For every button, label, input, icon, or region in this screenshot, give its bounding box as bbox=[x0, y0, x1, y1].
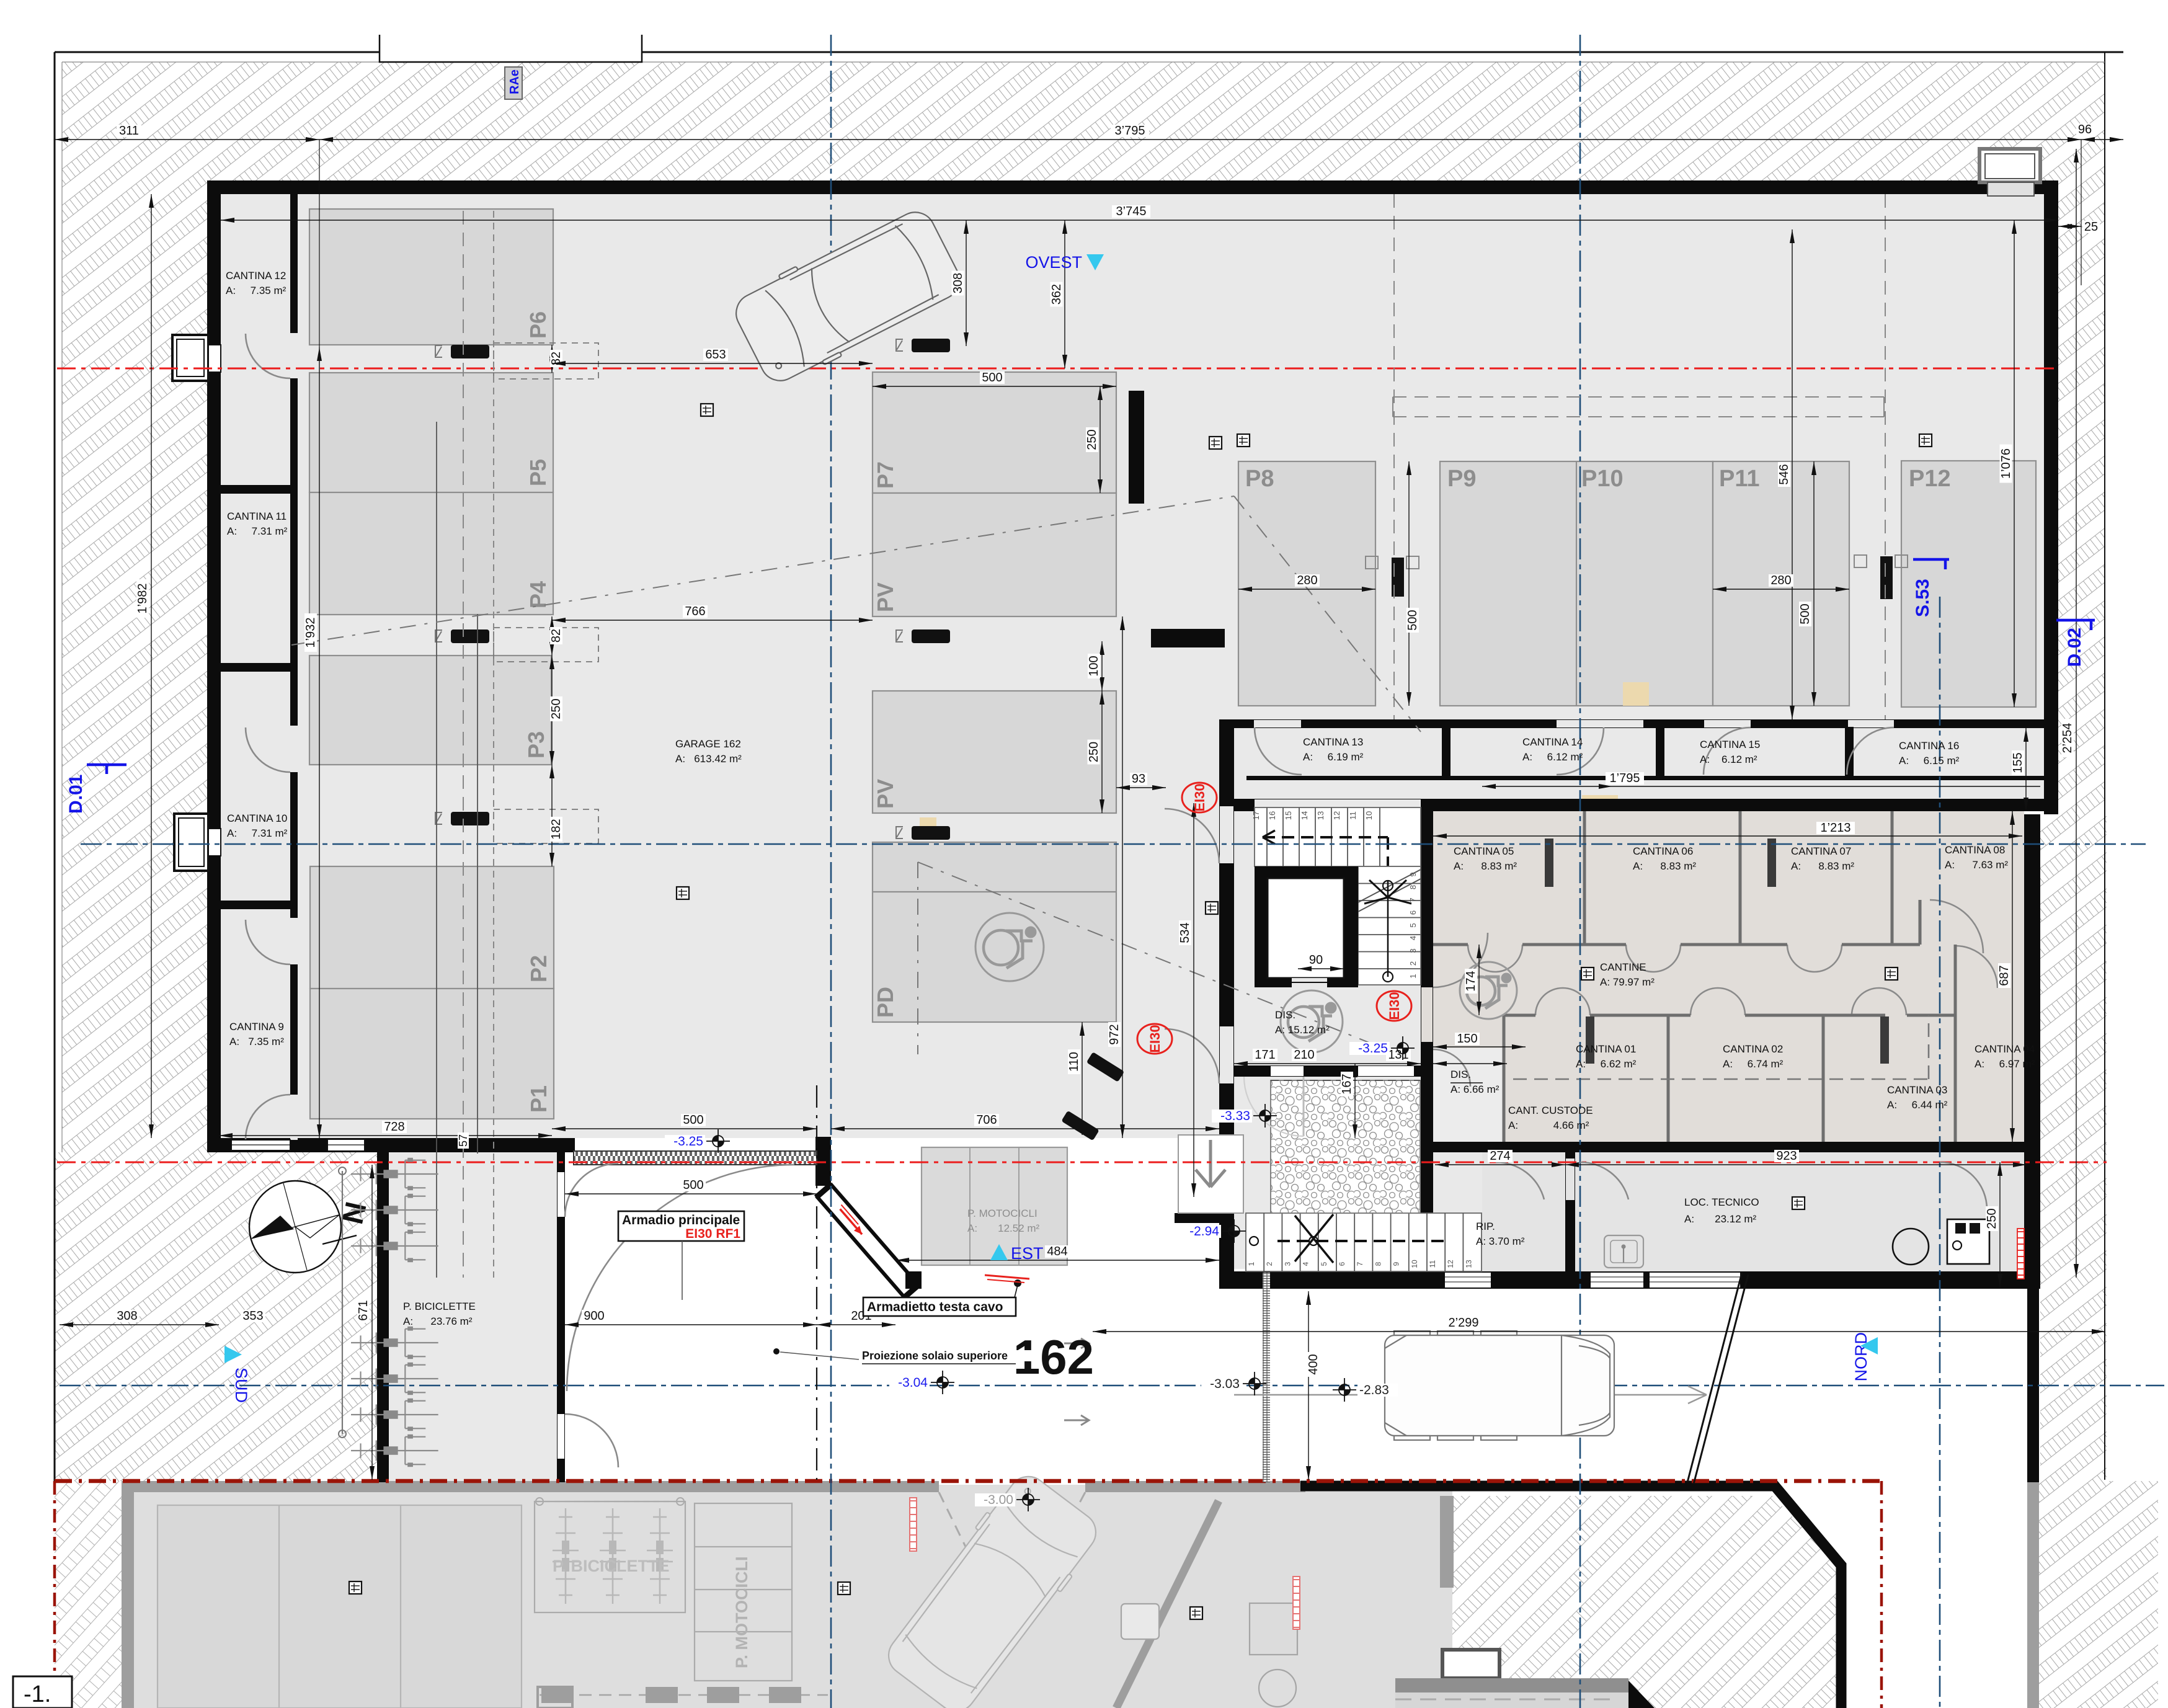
svg-text:GARAGE 162: GARAGE 162 bbox=[675, 738, 741, 750]
svg-text:CANTINA 15: CANTINA 15 bbox=[1700, 739, 1760, 750]
svg-text:A: 8.83 m²: A: 8.83 m² bbox=[1633, 860, 1696, 872]
svg-text:766: 766 bbox=[685, 605, 705, 618]
svg-text:2: 2 bbox=[1265, 1261, 1274, 1266]
svg-text:OVEST: OVEST bbox=[1025, 253, 1082, 272]
svg-text:P6: P6 bbox=[525, 311, 551, 339]
svg-text:A: 6.15 m²: A: 6.15 m² bbox=[1899, 755, 1960, 767]
svg-text:4: 4 bbox=[1408, 936, 1418, 940]
svg-text:1’213: 1’213 bbox=[1821, 821, 1851, 835]
svg-text:D.02: D.02 bbox=[2064, 628, 2085, 667]
svg-text:25: 25 bbox=[2084, 220, 2098, 234]
svg-text:1’982: 1’982 bbox=[136, 584, 149, 614]
svg-text:A: 23.76 m²: A: 23.76 m² bbox=[403, 1315, 473, 1327]
svg-text:3’795: 3’795 bbox=[1115, 124, 1145, 138]
svg-text:5: 5 bbox=[1408, 923, 1418, 927]
svg-text:CANTINA 12: CANTINA 12 bbox=[226, 270, 286, 282]
svg-text:4: 4 bbox=[1302, 1261, 1310, 1266]
svg-text:110: 110 bbox=[1067, 1052, 1081, 1072]
svg-text:CANTINA 11: CANTINA 11 bbox=[227, 510, 287, 522]
svg-text:A: 79.97 m²: A: 79.97 m² bbox=[1600, 976, 1655, 988]
svg-text:SUD: SUD bbox=[232, 1368, 251, 1403]
svg-text:308: 308 bbox=[117, 1309, 137, 1323]
svg-text:250: 250 bbox=[1087, 742, 1101, 762]
svg-text:A: 4.66 m²: A: 4.66 m² bbox=[1508, 1119, 1589, 1131]
svg-text:CANTINA 02: CANTINA 02 bbox=[1723, 1043, 1783, 1055]
svg-text:D.01: D.01 bbox=[66, 775, 86, 814]
svg-text:9: 9 bbox=[1408, 872, 1418, 876]
svg-text:A: 7.35 m²: A: 7.35 m² bbox=[229, 1036, 284, 1047]
svg-text:DIS.: DIS. bbox=[1275, 1009, 1295, 1021]
svg-text:972: 972 bbox=[1108, 1024, 1121, 1044]
svg-text:6: 6 bbox=[1408, 910, 1418, 915]
svg-text:1: 1 bbox=[1408, 974, 1418, 978]
svg-text:P2: P2 bbox=[526, 955, 551, 982]
svg-text:Armadietto testa cavo: Armadietto testa cavo bbox=[867, 1300, 1003, 1314]
svg-text:174: 174 bbox=[1464, 971, 1478, 991]
svg-text:362: 362 bbox=[1050, 284, 1064, 305]
svg-text:150: 150 bbox=[1457, 1032, 1477, 1046]
svg-text:274: 274 bbox=[1490, 1149, 1510, 1163]
svg-text:182: 182 bbox=[549, 819, 563, 839]
svg-text:A: 8.83 m²: A: 8.83 m² bbox=[1454, 860, 1517, 872]
svg-text:A: 23.12 m²: A: 23.12 m² bbox=[1684, 1213, 1757, 1225]
svg-text:CANT. CUSTODE: CANT. CUSTODE bbox=[1508, 1105, 1593, 1116]
svg-text:250: 250 bbox=[549, 698, 563, 719]
svg-text:155: 155 bbox=[2011, 752, 2025, 773]
svg-text:PV: PV bbox=[873, 779, 898, 809]
svg-text:CANTINE: CANTINE bbox=[1600, 961, 1646, 973]
svg-text:NORD: NORD bbox=[1852, 1332, 1870, 1382]
svg-text:6: 6 bbox=[1338, 1261, 1346, 1266]
svg-text:-3.03: -3.03 bbox=[1210, 1377, 1240, 1391]
svg-text:500: 500 bbox=[1798, 603, 1812, 624]
svg-text:1’076: 1’076 bbox=[1999, 448, 2013, 479]
svg-text:CANTINA 16: CANTINA 16 bbox=[1899, 740, 1959, 752]
svg-text:CANTINA 9: CANTINA 9 bbox=[229, 1021, 284, 1033]
svg-text:7: 7 bbox=[1408, 897, 1418, 902]
svg-text:EI30 RF1: EI30 RF1 bbox=[685, 1227, 740, 1241]
svg-text:CANTINA 04: CANTINA 04 bbox=[1975, 1043, 2035, 1055]
svg-text:13: 13 bbox=[1316, 811, 1325, 820]
svg-text:LOC. TECNICO: LOC. TECNICO bbox=[1684, 1196, 1759, 1208]
svg-text:-2.94: -2.94 bbox=[1189, 1224, 1219, 1239]
svg-text:A: 6.62 m²: A: 6.62 m² bbox=[1576, 1058, 1637, 1070]
svg-text:A: 12.52 m²: A: 12.52 m² bbox=[967, 1222, 1040, 1234]
svg-text:900: 900 bbox=[584, 1309, 604, 1323]
svg-text:-3.25: -3.25 bbox=[1358, 1041, 1388, 1056]
svg-text:11: 11 bbox=[1348, 811, 1357, 820]
svg-text:CANTINA 05: CANTINA 05 bbox=[1454, 845, 1514, 857]
svg-text:12: 12 bbox=[1332, 811, 1341, 820]
svg-text:A: 7.35 m²: A: 7.35 m² bbox=[226, 285, 287, 296]
svg-text:500: 500 bbox=[683, 1113, 703, 1127]
svg-text:311: 311 bbox=[119, 124, 139, 138]
svg-text:P. MOTOCICLI: P. MOTOCICLI bbox=[967, 1208, 1037, 1219]
svg-text:500: 500 bbox=[683, 1178, 703, 1192]
svg-text:CANTINA 13: CANTINA 13 bbox=[1303, 736, 1363, 748]
svg-text:P1: P1 bbox=[526, 1085, 551, 1113]
svg-text:10: 10 bbox=[1410, 1260, 1419, 1268]
svg-text:171: 171 bbox=[1255, 1048, 1275, 1062]
svg-text:-3.04: -3.04 bbox=[898, 1376, 928, 1390]
svg-text:PV: PV bbox=[873, 582, 898, 612]
svg-text:1: 1 bbox=[1247, 1261, 1256, 1266]
svg-text:353: 353 bbox=[242, 1309, 263, 1323]
svg-text:P5: P5 bbox=[525, 459, 551, 486]
svg-text:A: 8.83 m²: A: 8.83 m² bbox=[1791, 860, 1854, 872]
svg-text:CANTINA 03: CANTINA 03 bbox=[1887, 1084, 1947, 1096]
svg-text:-2.83: -2.83 bbox=[1359, 1383, 1389, 1397]
svg-text:A: 7.63 m²: A: 7.63 m² bbox=[1945, 859, 2008, 871]
svg-text:167: 167 bbox=[1340, 1074, 1354, 1094]
svg-text:280: 280 bbox=[1770, 574, 1791, 587]
svg-text:A: 613.42 m²: A: 613.42 m² bbox=[675, 753, 742, 765]
svg-text:CANTINA 14: CANTINA 14 bbox=[1522, 736, 1583, 748]
svg-text:7: 7 bbox=[1356, 1261, 1364, 1266]
svg-text:923: 923 bbox=[1776, 1149, 1797, 1163]
svg-text:250: 250 bbox=[1985, 1208, 1999, 1229]
svg-text:13: 13 bbox=[1464, 1260, 1473, 1268]
svg-text:CANTINA 07: CANTINA 07 bbox=[1791, 845, 1851, 857]
svg-text:A: 7.31 m²: A: 7.31 m² bbox=[227, 525, 288, 537]
svg-text:A: 6.12 m²: A: 6.12 m² bbox=[1522, 751, 1583, 763]
svg-text:P10: P10 bbox=[1581, 466, 1624, 492]
svg-text:17: 17 bbox=[1251, 811, 1261, 820]
svg-text:14: 14 bbox=[1300, 811, 1309, 820]
svg-text:Armadio principale: Armadio principale bbox=[622, 1213, 740, 1227]
svg-text:P3: P3 bbox=[523, 731, 549, 758]
svg-text:A: 15.12 m²: A: 15.12 m² bbox=[1275, 1024, 1330, 1036]
svg-text:-3.25: -3.25 bbox=[673, 1134, 703, 1149]
svg-text:210: 210 bbox=[1294, 1048, 1314, 1062]
svg-text:546: 546 bbox=[1777, 464, 1791, 484]
svg-text:A: 3.70 m²: A: 3.70 m² bbox=[1476, 1235, 1525, 1247]
svg-text:280: 280 bbox=[1297, 574, 1317, 587]
svg-text:DIS.: DIS. bbox=[1451, 1069, 1471, 1080]
svg-text:CANTINA 01: CANTINA 01 bbox=[1576, 1043, 1636, 1055]
svg-text:100: 100 bbox=[1087, 656, 1101, 676]
svg-text:P7: P7 bbox=[873, 461, 898, 489]
svg-text:10: 10 bbox=[1364, 811, 1374, 820]
svg-text:RIP.: RIP. bbox=[1476, 1221, 1495, 1232]
svg-text:90: 90 bbox=[1309, 953, 1323, 967]
svg-text:57: 57 bbox=[457, 1134, 469, 1147]
svg-text:P11: P11 bbox=[1719, 466, 1760, 492]
svg-text:82: 82 bbox=[549, 629, 563, 643]
svg-text:12: 12 bbox=[1446, 1260, 1455, 1268]
svg-text:1’932: 1’932 bbox=[304, 618, 318, 648]
svg-text:CANTINA 08: CANTINA 08 bbox=[1945, 844, 2005, 856]
svg-text:3: 3 bbox=[1408, 948, 1418, 953]
svg-text:484: 484 bbox=[1047, 1245, 1067, 1258]
svg-text:P. BICICLETTE: P. BICICLETTE bbox=[403, 1301, 476, 1312]
svg-text:308: 308 bbox=[951, 273, 965, 293]
svg-text:400: 400 bbox=[1307, 1354, 1320, 1374]
svg-text:706: 706 bbox=[976, 1113, 997, 1127]
svg-text:CANTINA 10: CANTINA 10 bbox=[227, 812, 287, 824]
svg-text:2’299: 2’299 bbox=[1449, 1316, 1479, 1330]
svg-text:EST: EST bbox=[1011, 1244, 1044, 1263]
svg-text:687: 687 bbox=[1997, 965, 2011, 985]
svg-text:93: 93 bbox=[1132, 772, 1145, 786]
svg-text:P. MOTOCICLI: P. MOTOCICLI bbox=[732, 1556, 751, 1668]
svg-text:EI30: EI30 bbox=[1192, 783, 1207, 811]
svg-text:EI30: EI30 bbox=[1147, 1025, 1163, 1052]
svg-text:96: 96 bbox=[2078, 123, 2092, 136]
svg-text:250: 250 bbox=[1085, 429, 1099, 450]
svg-text:11: 11 bbox=[1428, 1260, 1437, 1268]
svg-text:2: 2 bbox=[1408, 961, 1418, 966]
svg-text:653: 653 bbox=[705, 348, 726, 362]
svg-text:A: 6.74 m²: A: 6.74 m² bbox=[1723, 1058, 1784, 1070]
svg-text:3’745: 3’745 bbox=[1116, 205, 1147, 218]
svg-text:A: 7.31 m²: A: 7.31 m² bbox=[227, 827, 288, 839]
svg-text:A: 6.66 m²: A: 6.66 m² bbox=[1451, 1083, 1499, 1095]
svg-text:9: 9 bbox=[1392, 1261, 1401, 1266]
svg-text:16: 16 bbox=[1268, 811, 1277, 820]
svg-text:3: 3 bbox=[1283, 1261, 1292, 1266]
svg-text:728: 728 bbox=[384, 1120, 404, 1134]
svg-text:-1.: -1. bbox=[24, 1681, 51, 1707]
svg-text:A: 6.44 m²: A: 6.44 m² bbox=[1887, 1099, 1948, 1111]
svg-text:500: 500 bbox=[1406, 610, 1419, 630]
svg-text:Proiezione solaio superiore: Proiezione solaio superiore bbox=[862, 1350, 1008, 1362]
svg-text:S.53: S.53 bbox=[1913, 579, 1933, 617]
svg-text:P9: P9 bbox=[1447, 466, 1476, 492]
svg-text:671: 671 bbox=[357, 1300, 370, 1320]
svg-text:534: 534 bbox=[1178, 922, 1192, 943]
svg-text:A: 6.19 m²: A: 6.19 m² bbox=[1303, 751, 1364, 763]
svg-text:A: 6.12 m²: A: 6.12 m² bbox=[1700, 754, 1757, 765]
svg-text:-3.33: -3.33 bbox=[1220, 1109, 1250, 1123]
svg-text:5: 5 bbox=[1320, 1261, 1328, 1266]
svg-text:A: 6.97 m²: A: 6.97 m² bbox=[1975, 1058, 2035, 1070]
svg-text:1’795: 1’795 bbox=[1610, 772, 1640, 785]
svg-text:EI30: EI30 bbox=[1387, 992, 1402, 1020]
svg-text:500: 500 bbox=[982, 371, 1002, 385]
svg-text:P12: P12 bbox=[1909, 466, 1951, 492]
svg-text:CANTINA 06: CANTINA 06 bbox=[1633, 845, 1693, 857]
svg-text:15: 15 bbox=[1284, 811, 1293, 820]
svg-text:PD: PD bbox=[873, 987, 898, 1018]
svg-text:P8: P8 bbox=[1245, 466, 1274, 492]
svg-text:RAe: RAe bbox=[508, 69, 522, 94]
svg-text:8: 8 bbox=[1374, 1261, 1382, 1266]
svg-text:2’254: 2’254 bbox=[2061, 723, 2074, 754]
svg-text:-3.00: -3.00 bbox=[984, 1493, 1013, 1507]
svg-text:P. BICICLETTE: P. BICICLETTE bbox=[553, 1557, 670, 1575]
svg-text:8: 8 bbox=[1408, 885, 1418, 889]
